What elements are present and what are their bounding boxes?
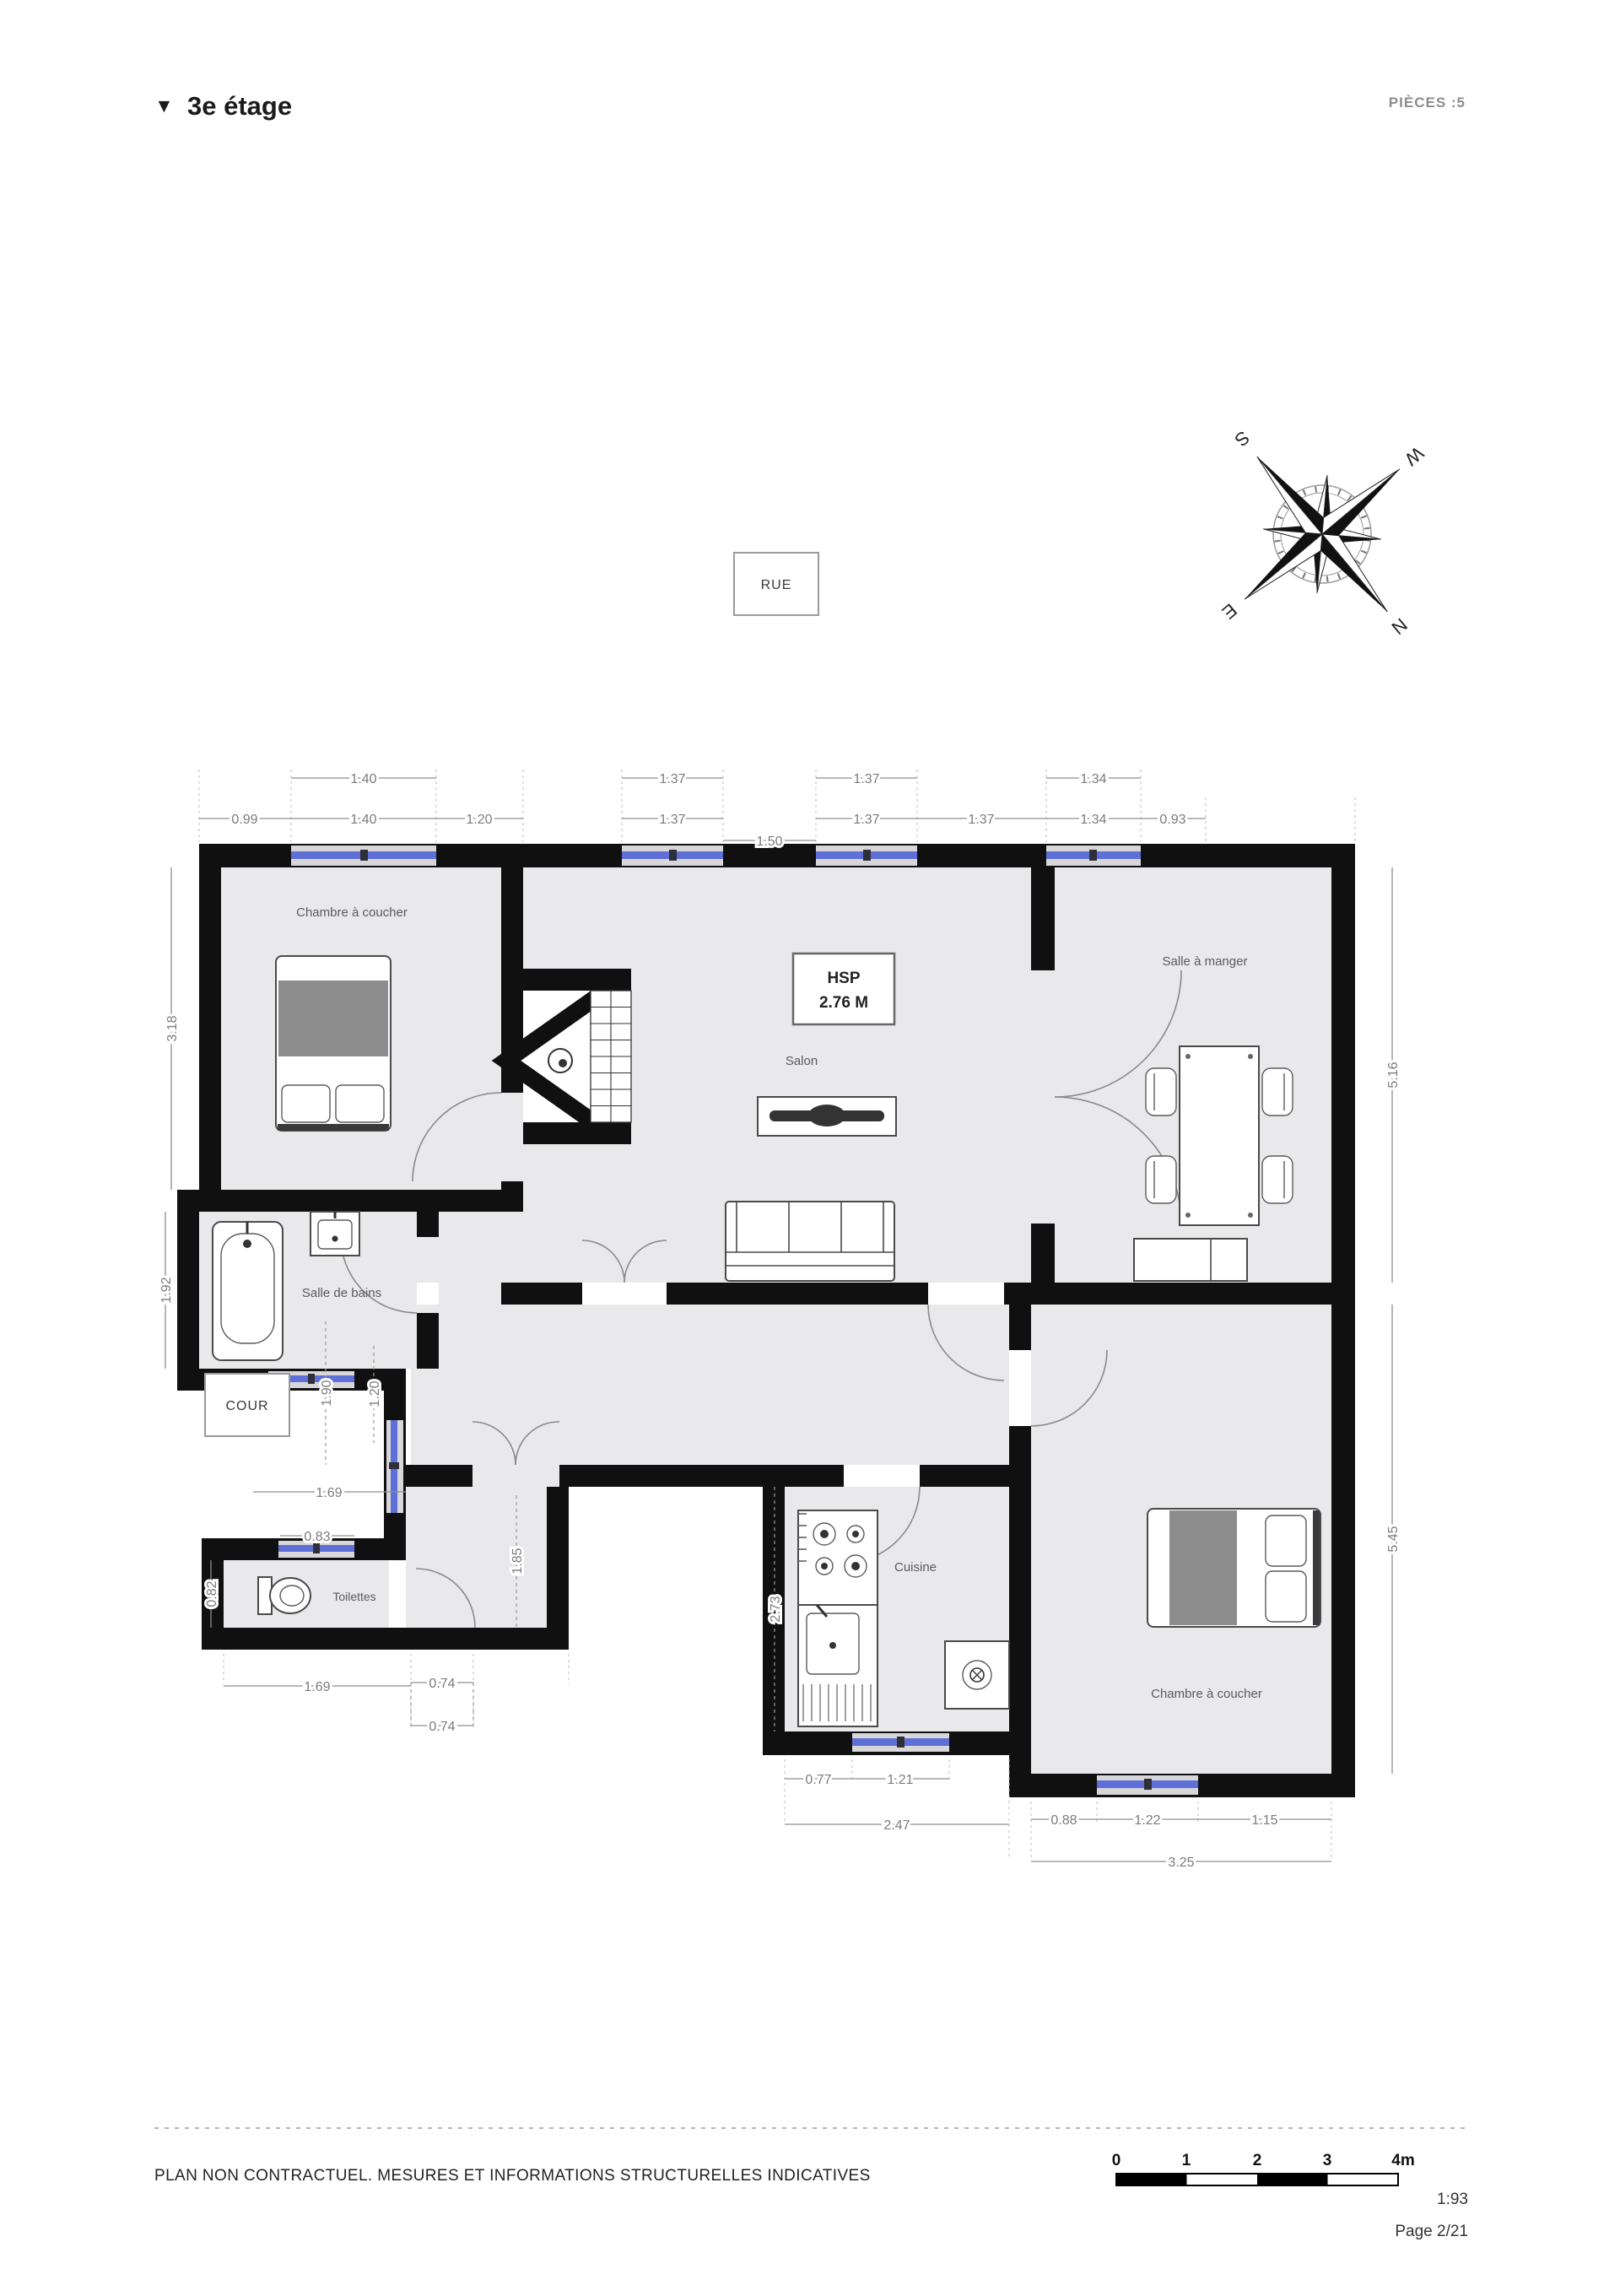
washing-machine-icon xyxy=(945,1641,1009,1709)
dim-cour-3: 0.83 xyxy=(304,1530,330,1544)
sofa-salon xyxy=(726,1202,894,1281)
dim-kitchen-3: 2.47 xyxy=(883,1818,910,1833)
compass-point-long xyxy=(1180,392,1465,677)
dim-top-outer-3: 1.34 xyxy=(1080,772,1106,786)
bed-bedroom2 xyxy=(1147,1509,1320,1627)
room-label-toilet: Toilettes xyxy=(332,1590,375,1603)
dim-bedroom2-2: 1.15 xyxy=(1251,1813,1277,1828)
console-table-salon xyxy=(758,1097,896,1136)
window-bedroom1 xyxy=(291,845,436,866)
scale-tick-2: 2 xyxy=(1253,2152,1262,2169)
toilet-icon xyxy=(258,1577,310,1614)
dim-top-outer-2: 1.37 xyxy=(853,772,879,786)
page-number: Page 2/21 xyxy=(1395,2223,1468,2240)
bed-bedroom1 xyxy=(276,956,391,1131)
floorplan-page: ▼ 3e étage PIÈCES :5 RUE N E S W xyxy=(0,0,1620,2296)
bathtub-icon xyxy=(213,1222,283,1360)
compass-north-label: N xyxy=(1387,613,1411,638)
dim-toilet-2: 0.74 xyxy=(429,1677,455,1691)
kitchen-sink-icon xyxy=(798,1605,877,1726)
bathroom-sink-icon xyxy=(310,1212,359,1256)
compass-east-label: E xyxy=(1218,599,1240,624)
room-label-bedroom2: Chambre à coucher xyxy=(1151,1687,1262,1701)
window-salon-left xyxy=(622,845,723,866)
dim-top-inner-7: 1.34 xyxy=(1080,813,1106,827)
dim-kitchen-0: 2.73 xyxy=(769,1596,783,1622)
hsp-value: 2.76 M xyxy=(819,994,868,1012)
page-title: 3e étage xyxy=(187,91,292,121)
window-kitchen xyxy=(852,1733,949,1752)
dim-toilet-1: 1.69 xyxy=(304,1680,330,1694)
compass-west-label: W xyxy=(1401,442,1428,470)
hsp-title: HSP xyxy=(827,970,860,987)
dim-kitchen-2: 1.21 xyxy=(887,1773,913,1787)
rue-marker: RUE xyxy=(734,553,818,615)
footer: PLAN NON CONTRACTUEL. MESURES ET INFORMA… xyxy=(154,2128,1468,2240)
window-dining xyxy=(1046,845,1141,866)
dim-top-inner-3: 1.37 xyxy=(659,813,685,827)
dim-right-0: 5.16 xyxy=(1386,1062,1401,1088)
dim-bedroom2-3: 3.25 xyxy=(1168,1856,1194,1870)
dim-bedroom2-1: 1.22 xyxy=(1134,1813,1160,1828)
entrance-landing xyxy=(506,969,631,1144)
dim-bedroom2-0: 0.88 xyxy=(1050,1813,1077,1828)
window-salon-right xyxy=(816,845,917,866)
scale-tick-3: 3 xyxy=(1323,2152,1332,2169)
dim-hall-0: 1.85 xyxy=(510,1548,525,1574)
pieces-count: PIÈCES :5 xyxy=(1389,95,1466,111)
dim-left-0: 3.18 xyxy=(165,1015,180,1041)
dim-cour-0: 1.90 xyxy=(320,1380,334,1406)
window-corridor-cour xyxy=(386,1420,403,1513)
room-label-bedroom1: Chambre à coucher xyxy=(296,905,408,920)
dim-top-inner-8: 0.93 xyxy=(1159,813,1185,827)
dim-toilet-3: 0.74 xyxy=(429,1720,455,1734)
room-label-dining: Salle à manger xyxy=(1163,954,1248,969)
stairs-icon xyxy=(591,991,631,1122)
dim-left-1: 1.92 xyxy=(159,1277,174,1303)
scale-tick-1: 1 xyxy=(1182,2152,1191,2169)
dim-toilet-0: 0.82 xyxy=(205,1580,219,1607)
title-triangle-icon: ▼ xyxy=(154,95,174,116)
dim-cour-1: 1.20 xyxy=(368,1380,382,1407)
stove-icon xyxy=(798,1510,877,1605)
dim-top-inner-6: 1.37 xyxy=(968,813,994,827)
scale-tick-0: 0 xyxy=(1112,2152,1121,2169)
dim-right-1: 5.45 xyxy=(1386,1526,1401,1552)
dim-cour-2: 1.69 xyxy=(316,1486,342,1500)
dim-top-outer-1: 1.37 xyxy=(659,772,685,786)
room-label-salon: Salon xyxy=(786,1054,818,1068)
cour-label: COUR xyxy=(225,1399,268,1413)
scale-tick-4: 4m xyxy=(1391,2152,1414,2169)
cour-marker: COUR xyxy=(205,1374,289,1436)
compass-south-label: S xyxy=(1231,427,1254,451)
compass-rose-icon: N E S W xyxy=(1138,348,1505,716)
dim-top-inner-0: 0.99 xyxy=(231,813,257,827)
ceiling-height-box: HSP 2.76 M xyxy=(793,954,894,1024)
sideboard-dining xyxy=(1134,1239,1247,1281)
dim-top-inner-2: 1.20 xyxy=(466,813,492,827)
disclaimer-text: PLAN NON CONTRACTUEL. MESURES ET INFORMA… xyxy=(154,2167,871,2185)
window-bedroom2 xyxy=(1097,1775,1198,1795)
dim-top-inner-4: 1.50 xyxy=(756,835,782,849)
scale-ratio: 1:93 xyxy=(1437,2191,1468,2208)
room-label-kitchen: Cuisine xyxy=(894,1560,937,1575)
rue-label: RUE xyxy=(761,578,792,592)
dim-top-inner-1: 1.40 xyxy=(350,813,376,827)
room-label-bathroom: Salle de bains xyxy=(302,1286,381,1300)
scale-bar: 0 1 2 3 4m xyxy=(1112,2152,1415,2185)
dim-kitchen-1: 0.77 xyxy=(805,1773,831,1787)
dim-top-outer-0: 1.40 xyxy=(350,772,376,786)
header: ▼ 3e étage PIÈCES :5 xyxy=(154,91,1466,121)
dim-top-inner-5: 1.37 xyxy=(853,813,879,827)
